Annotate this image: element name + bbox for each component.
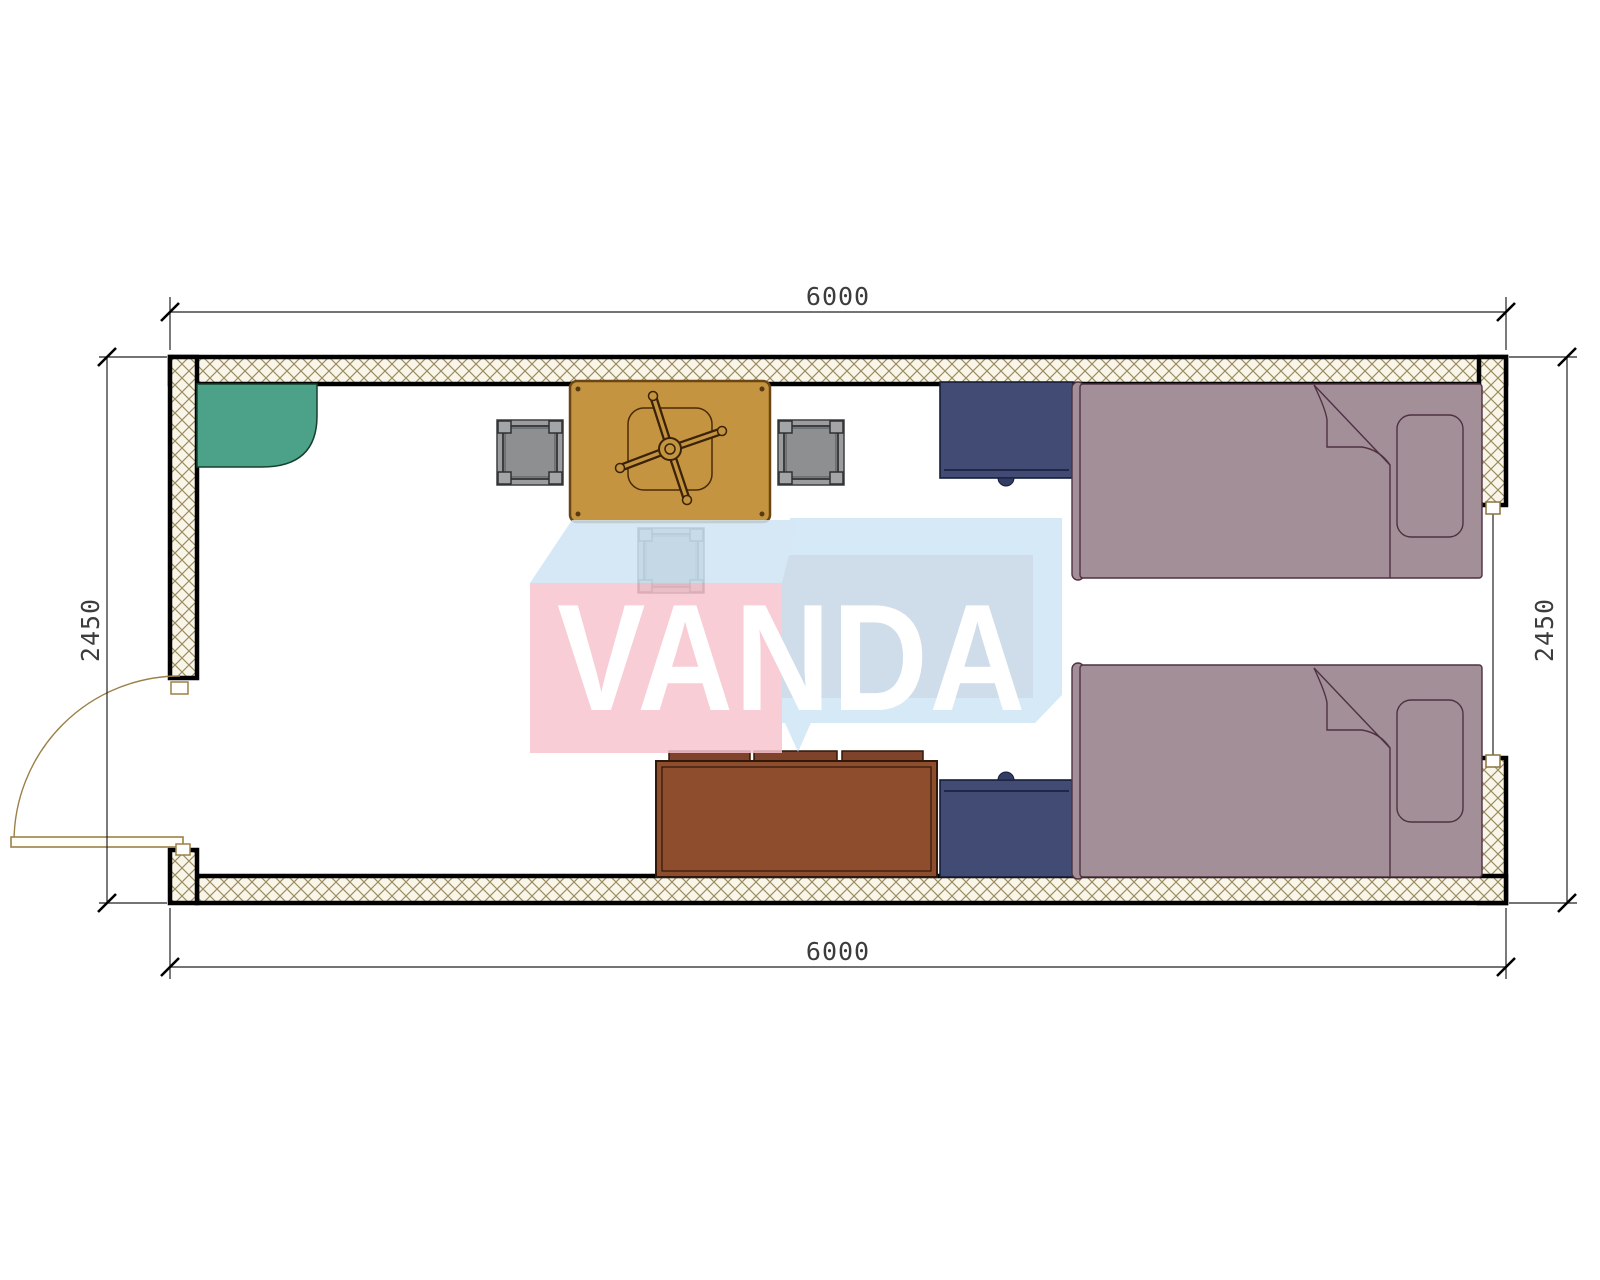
bed-pillow — [1397, 700, 1463, 822]
wall-bottom — [197, 876, 1506, 903]
wall-top — [170, 357, 1506, 384]
bed-top — [1072, 382, 1482, 580]
dimension-label-left: 2450 — [76, 598, 105, 662]
wall-right-upper — [1479, 357, 1506, 505]
nightstand-top — [940, 382, 1073, 486]
door-swing-arc — [14, 676, 180, 842]
dimension-label-right: 2450 — [1530, 598, 1559, 662]
sofa — [656, 751, 937, 877]
nightstand-bottom — [940, 772, 1073, 877]
window-frame-block-bottom — [1486, 755, 1500, 767]
bed-pillow — [1397, 415, 1463, 537]
floor-plan-page: VANDA — [0, 0, 1600, 1280]
floor-plan-drawing: VANDA — [0, 0, 1600, 1280]
window-frame-block-top — [1486, 502, 1500, 514]
drawer-knob — [998, 478, 1014, 486]
wall-door-jamb — [170, 850, 197, 903]
entry-door — [11, 676, 190, 855]
dimension-left — [98, 348, 167, 912]
dining-table — [570, 381, 770, 522]
bed-bottom — [1072, 663, 1482, 879]
dimension-label-top: 6000 — [806, 282, 870, 311]
sofa-body — [656, 761, 937, 877]
dimension-label-bottom: 6000 — [806, 937, 870, 966]
watermark-logo: VANDA — [530, 518, 1062, 753]
door-leaf — [11, 837, 183, 847]
wall-left — [170, 357, 197, 678]
stool-left — [497, 420, 563, 485]
door-frame-block-bottom — [176, 844, 190, 855]
window — [1486, 502, 1500, 767]
door-frame-block-top — [171, 682, 188, 694]
drawer-knob — [998, 772, 1014, 780]
corner-shelf — [197, 384, 317, 467]
stool-right — [778, 420, 844, 485]
watermark-text: VANDA — [557, 573, 1027, 743]
